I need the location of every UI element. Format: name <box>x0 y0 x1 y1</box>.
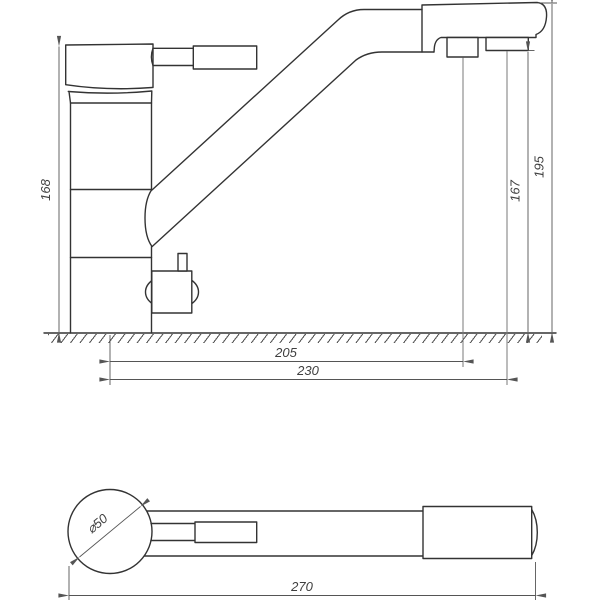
faucet-technical-drawing: 168 205 230 167 <box>0 0 600 600</box>
handle-rod-plan <box>151 524 195 541</box>
side-view: 168 205 230 167 <box>38 3 557 386</box>
dim-outlet-reach: 230 <box>110 363 507 380</box>
spout-tube <box>152 10 434 247</box>
spout-head-cap-arc <box>532 510 538 556</box>
lever-rod <box>151 48 193 65</box>
handle-grip-plan <box>195 522 257 543</box>
dim-total-height: 195 <box>532 3 558 332</box>
dim-body-height-label: 168 <box>38 178 53 200</box>
bonnet-collar <box>68 91 152 103</box>
aerator-outlet <box>447 38 478 58</box>
top-view: ⌀50 270 <box>68 490 537 600</box>
dim-body-height: 168 <box>38 47 59 333</box>
dim-spout-outlet-height: 167 <box>508 51 535 333</box>
technical-drawing-canvas: 168 205 230 167 <box>0 0 600 600</box>
dim-outlet-reach-label: 230 <box>296 363 319 378</box>
dim-aerator-reach-label: 205 <box>274 345 297 360</box>
lever-grip <box>193 46 256 69</box>
dim-spout-outlet-label: 167 <box>508 179 523 201</box>
dim-total-length-label: 270 <box>290 579 313 594</box>
valve-stem <box>178 254 187 272</box>
lever-block <box>66 44 153 89</box>
dim-total-length: 270 <box>69 562 536 600</box>
spout-head-plan <box>423 507 532 559</box>
spout-base-fillet <box>145 190 152 247</box>
dim-aerator-reach: 205 <box>110 345 463 362</box>
spout-tube-plan <box>144 511 423 556</box>
faucet-body <box>71 103 152 333</box>
valve-body <box>152 271 192 313</box>
dim-total-height-label: 195 <box>532 155 547 177</box>
filtered-water-outlet <box>486 38 528 51</box>
